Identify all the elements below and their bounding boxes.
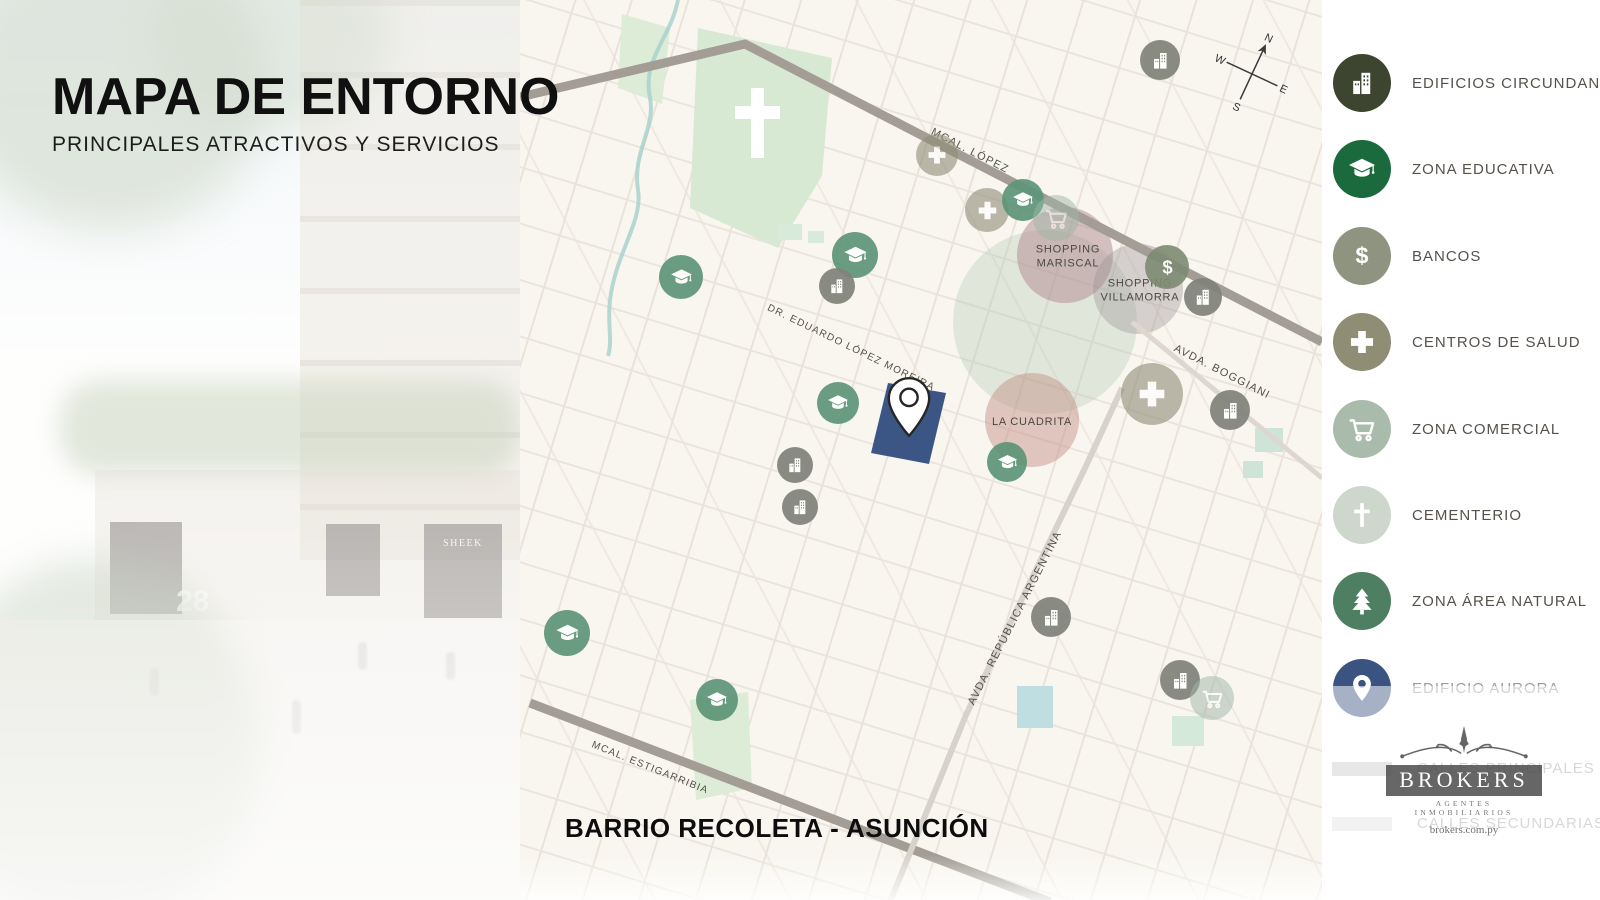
storefront-number: 28 [176, 585, 209, 619]
photo-person [292, 700, 301, 734]
map-marker-building-buildings-icon [1184, 278, 1222, 316]
map-marker-building-buildings-icon [777, 447, 813, 483]
compass-n: N [1262, 32, 1274, 46]
storefront-sign [326, 524, 380, 596]
storefront-sign-sheek: SHEEK [424, 524, 502, 618]
legend-item-label: ZONA EDUCATIVA [1412, 161, 1555, 178]
road-swatch [1332, 817, 1392, 831]
photo-person [446, 652, 455, 680]
latin-cross-icon [1333, 486, 1391, 544]
legend-item-label: BANCOS [1412, 248, 1481, 265]
dollar-icon: $ [1333, 227, 1391, 285]
map-marker-cart-cart-icon [1033, 195, 1079, 241]
legend-item-centros-de-salud: CENTROS DE SALUD [1333, 313, 1581, 371]
legend-item-edificio-aurora: EDIFICIO AURORA [1333, 659, 1560, 717]
legend-item-edificios-circundantes: EDIFICIOS CIRCUNDANTES [1333, 54, 1600, 112]
sheek-sign-text: SHEEK [443, 538, 483, 549]
map-marker-building-buildings-icon [782, 489, 818, 525]
map-marker-building-buildings-icon [1031, 597, 1071, 637]
photo-shrub [0, 560, 260, 900]
brokers-website: brokers.com.py [1386, 824, 1542, 836]
map-marker-cap-graduation-cap-icon [817, 382, 859, 424]
legend-item-label: EDIFICIOS CIRCUNDANTES [1412, 75, 1600, 92]
photo-sky [0, 0, 520, 360]
legend-item-label: CENTROS DE SALUD [1412, 334, 1581, 351]
map-marker-cap-graduation-cap-icon [987, 442, 1027, 482]
road-swatch [1332, 762, 1392, 776]
map-marker-building-buildings-icon [819, 268, 855, 304]
health-cross-icon [1333, 313, 1391, 371]
svg-text:$: $ [1162, 256, 1173, 277]
compass-s: S [1230, 101, 1242, 115]
graduation-cap-icon [1333, 140, 1391, 198]
page-subtitle: PRINCIPALES ATRACTIVOS Y SERVICIOS [52, 133, 560, 157]
legend-item-label: ZONA ÁREA NATURAL [1412, 593, 1587, 610]
legend-item-cementerio: CEMENTERIO [1333, 486, 1522, 544]
map-caption: BARRIO RECOLETA - ASUNCIÓN [565, 813, 989, 844]
legend-item-label: CEMENTERIO [1412, 507, 1522, 524]
map-panel: MCAL. LÓPEZ DR. EDUARDO LÓPEZ MOREIRA AV… [520, 0, 1322, 900]
legend-item-zona-educativa: ZONA EDUCATIVA [1333, 140, 1555, 198]
compass-e: E [1277, 83, 1289, 97]
cart-icon [1333, 400, 1391, 458]
legend-item-label: EDIFICIO AURORA [1412, 680, 1560, 697]
pin-icon [1333, 659, 1391, 717]
map-marker-health-health-cross-icon [916, 134, 958, 176]
map-marker-cap-graduation-cap-icon [659, 255, 703, 299]
map-marker-cart-cart-icon [1190, 676, 1234, 720]
map-marker-cap-graduation-cap-icon [696, 679, 738, 721]
photo-vines [60, 380, 520, 475]
map-markers-layer: $ [520, 0, 1322, 900]
storefront-sign [110, 522, 182, 614]
brokers-name: BROKERS [1386, 765, 1542, 796]
legend-panel: EDIFICIOS CIRCUNDANTESZONA EDUCATIVA$BAN… [1322, 0, 1600, 900]
tree-icon [1333, 572, 1391, 630]
photo-ground [0, 620, 520, 900]
compass-w: W [1213, 52, 1228, 68]
slide: SHEEK 28 MAPA DE ENTORNO PRINCIPALES ATR… [0, 0, 1600, 900]
map-marker-cap-graduation-cap-icon [544, 610, 590, 656]
map-marker-dollar-dollar-icon: $ [1145, 245, 1189, 289]
photo-person [150, 668, 159, 696]
compass-rose-icon: N E W S [1208, 30, 1296, 118]
map-marker-building-buildings-icon [1210, 390, 1250, 430]
page-title: MAPA DE ENTORNO [52, 70, 560, 125]
brokers-ornament-icon [1389, 724, 1539, 762]
photo-person [358, 642, 367, 670]
legend-item-label: ZONA COMERCIAL [1412, 421, 1560, 438]
map-marker-building-buildings-icon [1140, 40, 1180, 80]
legend-item-zona-area-natural: ZONA ÁREA NATURAL [1333, 572, 1587, 630]
location-pin-icon [884, 376, 934, 438]
brokers-tagline: AGENTES INMOBILIARIOS [1386, 799, 1542, 817]
title-block: MAPA DE ENTORNO PRINCIPALES ATRACTIVOS Y… [52, 70, 560, 157]
svg-text:$: $ [1356, 242, 1369, 268]
legend-item-zona-comercial: ZONA COMERCIAL [1333, 400, 1560, 458]
buildings-icon [1333, 54, 1391, 112]
map-marker-health-health-cross-icon [1121, 363, 1183, 425]
photo-storefront [95, 470, 520, 620]
legend-item-bancos: $BANCOS [1333, 227, 1481, 285]
brokers-logo: BROKERS AGENTES INMOBILIARIOS brokers.co… [1386, 724, 1542, 836]
